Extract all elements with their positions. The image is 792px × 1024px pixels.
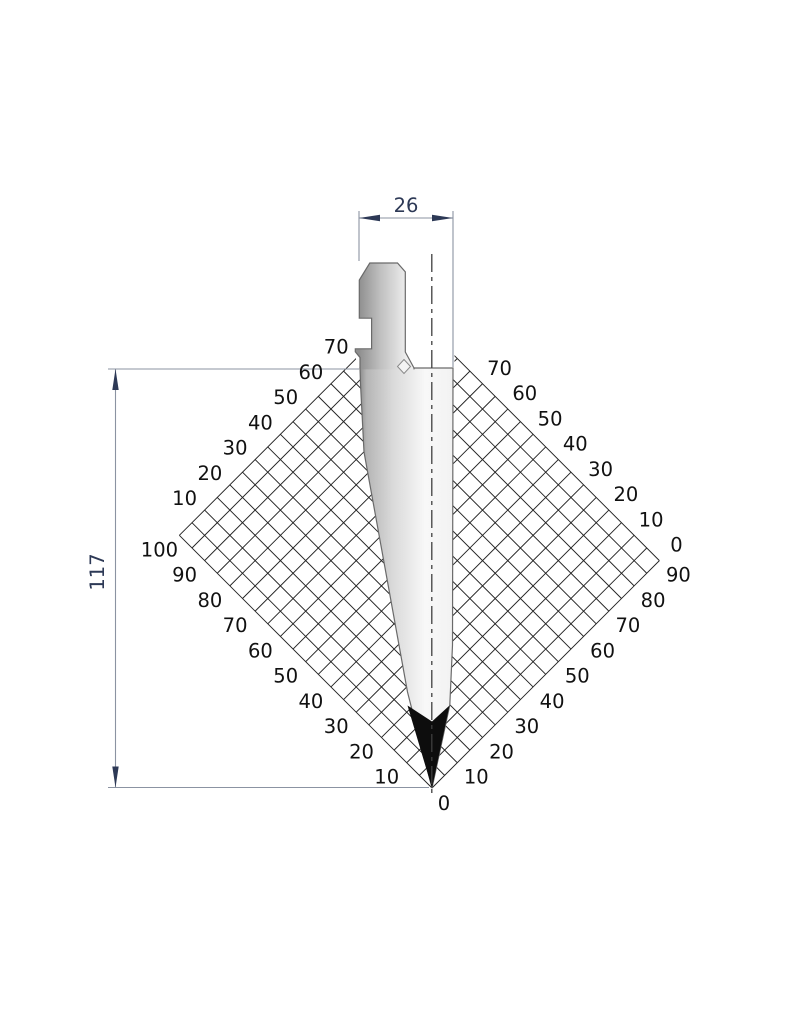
scale-label-lower_left-20: 20 xyxy=(349,741,374,764)
width-dimension-label: 26 xyxy=(394,194,419,217)
scale-label-lower_right-70: 70 xyxy=(615,614,640,637)
scale-label-lower_right-10: 10 xyxy=(464,766,489,789)
scale-label-lower_left-70: 70 xyxy=(223,614,248,637)
scale-label-lower_left-10: 10 xyxy=(374,766,399,789)
scale-label-upper_right-30: 30 xyxy=(588,458,613,481)
punch-shank xyxy=(355,263,414,369)
scale-label-lower_left-80: 80 xyxy=(197,589,222,612)
arrow-down-icon xyxy=(112,767,118,788)
scale-label-upper_left-10: 10 xyxy=(172,487,197,510)
scale-label-lower_right-90: 90 xyxy=(666,564,691,587)
scale-label-lower_left-90: 90 xyxy=(172,564,197,587)
origin-label: 0 xyxy=(438,792,450,815)
arrow-up-icon xyxy=(112,369,118,390)
scale-label-lower_left-100: 100 xyxy=(141,538,178,561)
scale-label-upper_left-20: 20 xyxy=(197,462,222,485)
scale-label-lower_left-40: 40 xyxy=(298,690,323,713)
scale-label-upper_right-20: 20 xyxy=(613,483,638,506)
scale-label-upper_left-30: 30 xyxy=(223,437,248,460)
scale-label-lower_right-30: 30 xyxy=(514,715,539,738)
scale-label-upper_left-50: 50 xyxy=(273,386,298,409)
scale-label-upper_left-60: 60 xyxy=(298,361,323,384)
scale-label-lower_right-40: 40 xyxy=(540,690,565,713)
scale-label-lower_right-60: 60 xyxy=(590,639,615,662)
scale-label-upper_right-40: 40 xyxy=(563,433,588,456)
scale-label-lower_right-20: 20 xyxy=(489,741,514,764)
scale-label-upper_right-50: 50 xyxy=(538,407,563,430)
scale-label-lower_right-50: 50 xyxy=(565,665,590,688)
arrow-right-icon xyxy=(432,215,453,221)
scale-label-upper_left-40: 40 xyxy=(248,411,273,434)
scale-label-upper_left-70: 70 xyxy=(324,336,349,359)
scale-label-lower_left-60: 60 xyxy=(248,639,273,662)
technical-drawing: 26 117 102030405060701020304050607080901… xyxy=(0,0,792,1024)
scale-label-upper_right-70: 70 xyxy=(487,357,512,380)
height-dimension-label: 117 xyxy=(86,553,109,590)
scale-label-lower_left-30: 30 xyxy=(324,715,349,738)
scale-label-lower_left-50: 50 xyxy=(273,665,298,688)
drawing-canvas: 26 117 102030405060701020304050607080901… xyxy=(0,0,792,1024)
scale-label-upper_right-0: 0 xyxy=(670,534,682,557)
scale-label-upper_right-10: 10 xyxy=(639,508,664,531)
scale-label-lower_right-80: 80 xyxy=(641,589,666,612)
scale-label-upper_right-60: 60 xyxy=(512,382,537,405)
arrow-left-icon xyxy=(359,215,380,221)
